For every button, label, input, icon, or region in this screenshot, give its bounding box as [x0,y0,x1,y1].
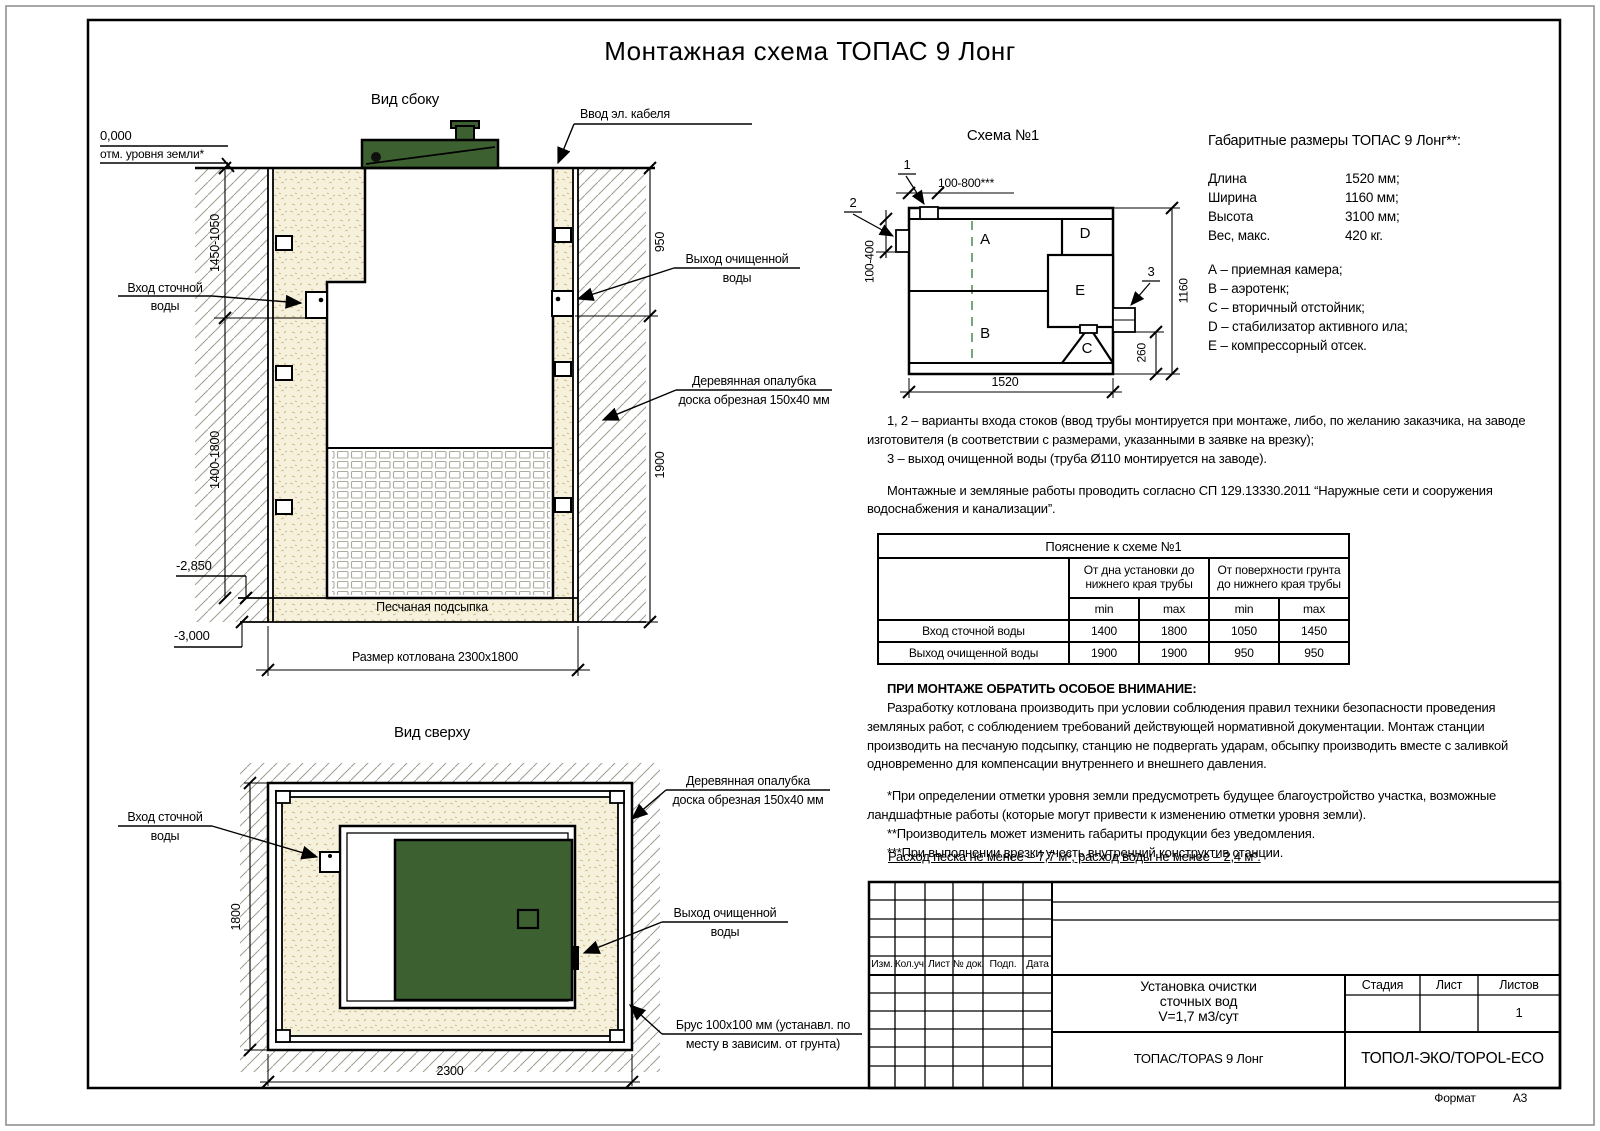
dim-depth-upper-right: 950 [653,222,667,262]
inlet-label-line1: Вход сточной [118,281,212,295]
inlet-pipe [306,292,327,318]
stamp-col-data: Дата [1023,959,1052,971]
scheme-notes: 1, 2 – варианты входа стоков (ввод трубы… [867,412,1547,519]
scheme-dim-left: 100-400 [863,227,876,297]
stamp-col-koluch: Кол.уч. [895,959,925,970]
drawing-canvas [0,0,1600,1131]
level-mark-3000: -3,000 [174,629,210,644]
attention-heading: ПРИ МОНТАЖЕ ОБРАТИТЬ ОСОБОЕ ВНИМАНИЕ: [867,680,1547,699]
stamp-col-ndok: № док. [953,959,983,970]
table-group2-header: От поверхности грунта до нижнего края тр… [1209,558,1349,598]
tv-formwork-label-line1: Деревянная опалубка [666,774,830,788]
consumption-note: Расход песка не менее – 7,7 м³, расход в… [888,850,1261,865]
table-group1-header: От дна установки до нижнего края трубы [1069,558,1209,598]
compartment-d-label: D [1070,226,1100,243]
max-header: max [1279,598,1349,620]
format-value: А3 [1500,1092,1540,1105]
spec-label: Высота [1208,209,1253,224]
row-label: Вход сточной воды [878,620,1069,642]
spec-label: Длина [1208,171,1247,186]
scheme-outlet-3 [1113,308,1135,332]
min-header: min [1209,598,1279,620]
scheme-dim-bottom: 1520 [975,375,1035,389]
footnote-1: *При определении отметки уровня земли пр… [867,787,1547,825]
beam-label-line2: месту в зависим. от грунта) [658,1037,868,1051]
beam-label-line1: Брус 100х100 мм (устанавл. по [658,1018,868,1032]
drawing-sheet: Монтажная схема ТОПАС 9 Лонг Вид сбоку 0… [0,0,1600,1131]
cell: 950 [1279,642,1349,664]
cell: 1450 [1279,620,1349,642]
pit-size-label: Размер котлована 2300х1800 [325,650,545,664]
tv-dim-bottom: 2300 [410,1064,490,1078]
cell: 1900 [1139,642,1209,664]
legend-item: Е – компрессорный отсек. [1208,338,1367,353]
stamp-col-list: Лист [925,959,953,971]
note-inlet-variants: 1, 2 – варианты входа стоков (ввод трубы… [867,412,1547,450]
outlet-label-line1: Выход очищенной [674,252,800,266]
compartment-e-label: E [1065,283,1095,300]
cell: 1400 [1069,620,1139,642]
dim-depth-lower-left: 1400-1800 [208,425,222,495]
spec-value: 420 кг. [1345,228,1383,243]
cell: 1050 [1209,620,1279,642]
tv-formwork-label-line2: доска обрезная 150х40 мм [666,793,830,807]
inlet-pipe-top [320,852,340,872]
scheme-dim-right: 1160 [1177,271,1190,311]
tv-inlet-label-line2: воды [118,829,212,843]
attention-body: Разработку котлована производить при усл… [867,699,1547,774]
top-view-title: Вид сверху [382,725,482,742]
stamp-col-izm: Изм. [869,959,895,971]
stamp-sheets-value: 1 [1478,1006,1560,1021]
max-header: max [1139,598,1209,620]
scheme-inlet-1 [920,207,938,219]
note-sp-standard: Монтажные и земляные работы проводить со… [867,482,1547,520]
formwork-label-line2: доска обрезная 150х40 мм [676,393,832,407]
cell: 1900 [1069,642,1139,664]
top-view-drawing [240,763,660,1072]
format-label: Формат [1420,1092,1490,1105]
side-view-drawing [195,121,655,622]
sand-bed-label: Песчаная подсыпка [357,600,507,614]
zero-level-mark: 0,000 [100,129,132,144]
scheme-inlet-2 [896,230,909,252]
legend-item: А – приемная камера; [1208,262,1342,277]
attention-block: ПРИ МОНТАЖЕ ОБРАТИТЬ ОСОБОЕ ВНИМАНИЕ: Ра… [867,680,1547,863]
stamp-title-line3: V=1,7 м3/сут [1052,1009,1345,1025]
page-title: Монтажная схема ТОПАС 9 Лонг [590,36,1030,67]
row-label: Выход очищенной воды [878,642,1069,664]
legend-item: С – вторичный отстойник; [1208,300,1365,315]
note-outlet: 3 – выход очищенной воды (труба Ø110 мон… [867,450,1547,469]
table-title: Пояснение к схеме №1 [878,534,1349,558]
table-row: Вход сточной воды 1400 1800 1050 1450 [878,620,1349,642]
tank-lid-top [395,840,579,1000]
stamp-sheets-label: Листов [1478,978,1560,992]
dim-depth-lower-right: 1900 [653,445,667,485]
formwork-label-line1: Деревянная опалубка [676,374,832,388]
min-header: min [1069,598,1139,620]
table-row: Выход очищенной воды 1900 1900 950 950 [878,642,1349,664]
cable-entry-label: Ввод эл. кабеля [580,107,670,121]
scheme-callout-2: 2 [845,196,861,211]
tv-dim-left: 1800 [229,882,243,952]
scheme-title: Схема №1 [948,128,1058,145]
tv-inlet-label-line1: Вход сточной [118,810,212,824]
stamp-product-name: ТОПАС/TOPAS 9 Лонг [1052,1052,1345,1067]
legend-item: D – стабилизатор активного ила; [1208,319,1408,334]
scheme-callout-1: 1 [899,158,915,173]
scheme-callout-3: 3 [1143,265,1159,280]
inlet-label-line2: воды [118,299,212,313]
outlet-pipe [552,291,573,316]
cell: 1800 [1139,620,1209,642]
spec-label: Вес, макс. [1208,228,1270,243]
dim-depth-upper-left: 1450-1050 [208,208,222,278]
specs-heading: Габаритные размеры ТОПАС 9 Лонг**: [1208,133,1461,149]
tank-lid [362,121,498,168]
stamp-company-name: ТОПОЛ-ЭКО/TOPOL-ECO [1345,1050,1560,1067]
outlet-label-line2: воды [674,271,800,285]
spec-value: 3100 мм; [1345,209,1400,224]
tv-outlet-label-line1: Выход очищенной [662,906,788,920]
stamp-col-podp: Подп. [983,959,1023,971]
compartment-c-label: C [1072,341,1102,358]
stamp-stage-label: Стадия [1345,978,1420,992]
compartment-a-label: A [970,232,1000,249]
zero-level-note: отм. уровня земли* [100,148,204,161]
tv-outlet-label-line2: воды [662,925,788,939]
compartment-b-label: B [970,326,1000,343]
legend-item: В – аэротенк; [1208,281,1289,296]
footnote-2: **Производитель может изменить габариты … [867,825,1547,844]
stamp-sheet-label: Лист [1420,978,1478,992]
spec-value: 1160 мм; [1345,190,1399,205]
cell: 950 [1209,642,1279,664]
spec-label: Ширина [1208,190,1257,205]
explanation-table: Пояснение к схеме №1 От дна установки до… [877,533,1350,665]
side-view-title: Вид сбоку [355,92,455,109]
level-mark-2850: -2,850 [176,559,212,574]
spec-value: 1520 мм; [1345,171,1400,186]
scheme-dim-top: 100-800*** [938,177,994,190]
scheme-dim-outlet: 260 [1135,333,1148,373]
